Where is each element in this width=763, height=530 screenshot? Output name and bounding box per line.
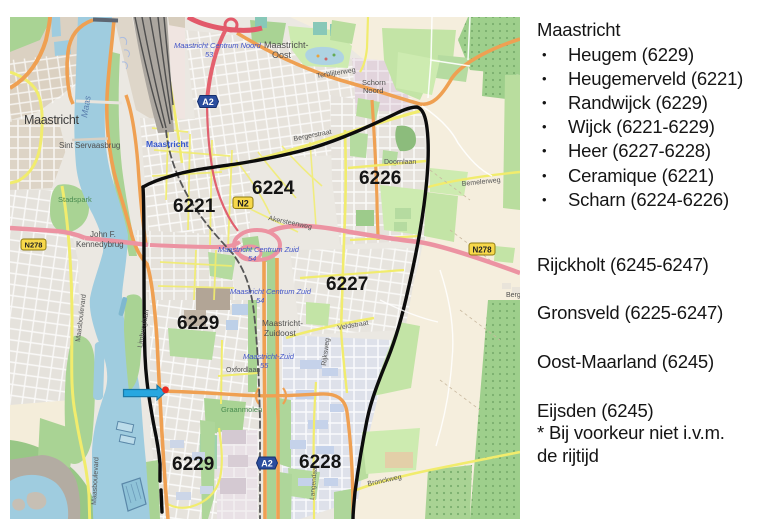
- svg-text:Oxfordlaan: Oxfordlaan: [226, 367, 260, 374]
- svg-text:N278: N278: [472, 246, 492, 255]
- svg-text:54: 54: [248, 254, 256, 263]
- svg-text:A2: A2: [261, 459, 273, 469]
- svg-text:6229: 6229: [177, 313, 219, 334]
- svg-text:Maastricht-Zuid: Maastricht-Zuid: [243, 352, 295, 361]
- svg-text:Doornlaan: Doornlaan: [384, 159, 416, 166]
- svg-text:Maastricht-: Maastricht-: [262, 318, 303, 328]
- svg-text:Kennedybrug: Kennedybrug: [76, 240, 124, 249]
- svg-text:N278: N278: [25, 241, 43, 250]
- svg-text:6228: 6228: [299, 452, 341, 473]
- svg-text:Berg: Berg: [506, 292, 521, 299]
- svg-text:A2: A2: [202, 97, 214, 107]
- svg-text:Graanmolen: Graanmolen: [221, 405, 262, 414]
- svg-text:Sint Servaasbrug: Sint Servaasbrug: [59, 141, 120, 150]
- svg-text:53: 53: [205, 50, 214, 59]
- svg-text:6227: 6227: [326, 274, 368, 295]
- svg-text:John F.: John F.: [90, 230, 116, 239]
- svg-text:Stadspark: Stadspark: [58, 195, 92, 204]
- svg-text:Zuidoost: Zuidoost: [264, 328, 297, 338]
- svg-text:6224: 6224: [252, 178, 295, 199]
- svg-text:Maastricht Centrum Zuid: Maastricht Centrum Zuid: [218, 245, 300, 254]
- svg-text:Noord: Noord: [363, 86, 383, 95]
- svg-text:6226: 6226: [359, 168, 401, 189]
- svg-text:Maastricht Centrum Noord: Maastricht Centrum Noord: [174, 41, 262, 50]
- svg-text:Maastricht: Maastricht: [24, 113, 79, 127]
- svg-text:N2: N2: [237, 199, 249, 209]
- svg-text:6229: 6229: [172, 454, 214, 475]
- svg-text:Maastricht: Maastricht: [146, 139, 189, 149]
- svg-text:54: 54: [256, 296, 264, 305]
- svg-text:Maastricht-: Maastricht-: [264, 40, 309, 50]
- svg-text:6221: 6221: [173, 196, 216, 217]
- svg-text:Maastricht Centrum Zuid: Maastricht Centrum Zuid: [230, 287, 312, 296]
- svg-text:55: 55: [260, 361, 269, 370]
- svg-text:Oost: Oost: [272, 50, 292, 60]
